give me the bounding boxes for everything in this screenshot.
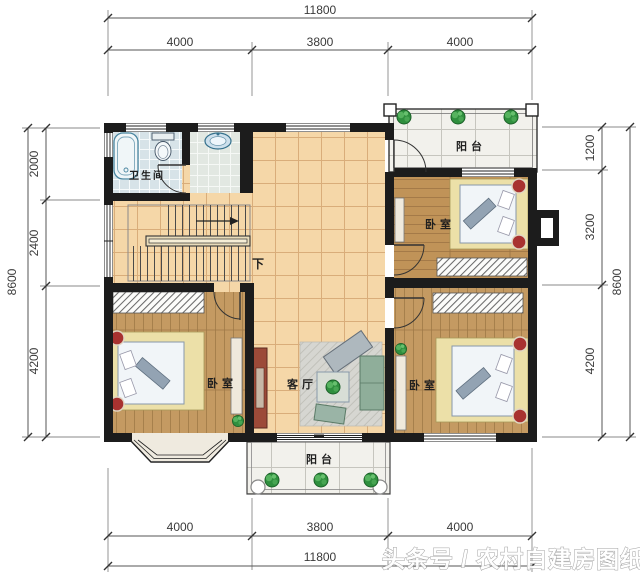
window — [105, 133, 113, 157]
wall-bathroom-right — [182, 123, 190, 165]
bedside-table — [512, 179, 526, 193]
plant-icon — [395, 343, 406, 354]
tv — [256, 368, 264, 408]
dim-right-total: 8600 — [610, 268, 624, 295]
wardrobe — [433, 293, 523, 313]
plant-icon — [397, 110, 411, 124]
dim-left-seg-2: 2400 — [27, 229, 41, 256]
dim-top-seg-2: 3800 — [307, 35, 334, 49]
watermark: 头条号 / 农村自建房图纸 — [382, 546, 640, 572]
bedside-table — [512, 235, 526, 249]
room-label-bedroom-bottom-right: 卧室 — [409, 378, 439, 392]
dim-left-seg-1: 2000 — [27, 150, 41, 177]
toilet-bowl — [155, 142, 171, 161]
wall-bedroom-living — [245, 283, 254, 442]
bedside-table — [513, 337, 527, 351]
wall-stairs-bedroom — [104, 283, 214, 292]
toilet-tank — [152, 133, 174, 140]
dim-left-total: 8600 — [5, 268, 19, 295]
bay-window — [130, 433, 230, 462]
dim-bottom-seg-2: 3800 — [307, 520, 334, 534]
dim-right-seg-3: 4200 — [583, 347, 597, 374]
dim-top-seg-3: 4000 — [447, 35, 474, 49]
plant-icon — [451, 110, 465, 124]
room-label-bathroom: 卫生间 — [129, 169, 165, 182]
room-label-balcony-top: 阳台 — [456, 139, 486, 153]
dim-top-seg-1: 4000 — [167, 35, 194, 49]
room-label-balcony-bottom: 阳台 — [306, 452, 336, 466]
window — [462, 169, 514, 177]
window — [126, 124, 166, 132]
wall-alcove-right — [240, 123, 253, 193]
dim-bottom-seg-1: 4000 — [167, 520, 194, 534]
wall-hall-bedroom — [385, 277, 394, 298]
wall-bathroom-bottom — [104, 193, 190, 201]
dim-right-seg-1: 1200 — [583, 134, 597, 161]
stair-rail-inner — [149, 239, 247, 243]
window — [105, 205, 113, 277]
dresser — [231, 338, 242, 414]
wash-basin-inner — [210, 137, 226, 146]
window — [424, 434, 496, 442]
floor-plan-page: 卫生间 阳台 阳台 卧室 卧室 卧室 客厅 下 — [0, 0, 640, 575]
sliding-door-balcony — [277, 434, 362, 442]
flue-duct-inner — [541, 218, 553, 238]
dresser — [395, 198, 404, 242]
balcony-top-right — [384, 104, 538, 172]
dim-bottom-total: 11800 — [304, 550, 337, 564]
balcony-corner-post — [526, 104, 538, 116]
balcony-corner-post — [384, 104, 396, 116]
window — [286, 124, 350, 132]
dim-right-seg-2: 3200 — [583, 213, 597, 240]
faucet-icon — [217, 133, 220, 136]
plant-icon — [364, 473, 378, 487]
stairs-down-label: 下 — [252, 257, 264, 271]
dim-left-seg-3: 4200 — [27, 347, 41, 374]
plant-icon — [232, 415, 243, 426]
room-label-living-room: 客厅 — [286, 377, 317, 391]
dresser — [396, 356, 406, 430]
dim-top-total: 11800 — [304, 3, 337, 17]
wall-living-bedroom — [385, 328, 394, 442]
wardrobe — [113, 292, 204, 313]
floor-plan-drawing: 卫生间 阳台 阳台 卧室 卧室 卧室 客厅 下 — [0, 0, 640, 575]
plant-icon — [504, 110, 518, 124]
window — [198, 124, 234, 132]
plant-icon — [326, 380, 340, 394]
room-label-bedroom-bottom-left: 卧室 — [207, 376, 237, 390]
wall-between-right-bedrooms — [394, 278, 537, 288]
wall-hall-balcony — [385, 123, 394, 140]
room-label-bedroom-top-right: 卧室 — [425, 217, 455, 231]
wall-hall-bedroom — [385, 172, 394, 245]
plant-icon — [314, 473, 328, 487]
dim-bottom-seg-3: 4000 — [447, 520, 474, 534]
bedside-table — [513, 409, 527, 423]
wardrobe — [437, 258, 527, 276]
sofa-seat — [314, 404, 346, 424]
stair-treads-lower — [128, 246, 250, 281]
balcony-bottom — [247, 442, 390, 494]
plant-icon — [265, 473, 279, 487]
wall-right — [528, 168, 537, 442]
wall-left — [104, 123, 113, 442]
balcony-column — [251, 480, 265, 494]
